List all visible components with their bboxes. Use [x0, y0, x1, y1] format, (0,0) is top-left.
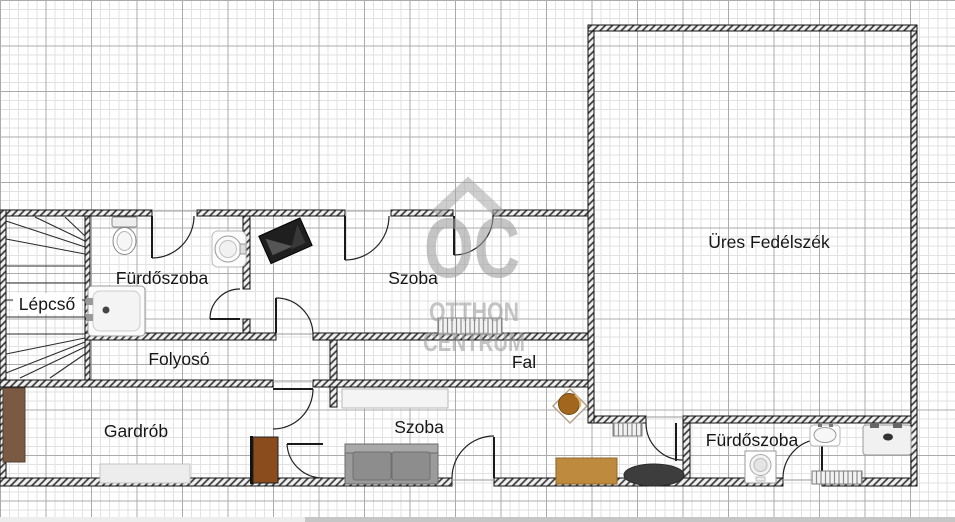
side-table-with-plant: [553, 389, 587, 423]
floorplan-viewer[interactable]: Lépcső Fürdőszoba Szoba Folyosó Fal Gard…: [0, 0, 955, 522]
door-corridor-to-wardrobe-room: [273, 389, 313, 429]
otthon-centrum-watermark: OC OTTHON CENTRUM: [423, 184, 525, 357]
washing-machine: [745, 451, 776, 483]
door-top-room-exterior-left: [345, 216, 389, 260]
room-label-bathroom-top: Fürdőszoba: [116, 268, 209, 288]
door-corridor-to-top-room: [276, 298, 313, 335]
door-attic-to-bottom-room: [646, 423, 683, 461]
door-wardrobe-to-bottom-room: [287, 444, 323, 478]
top-bathroom-shower: [86, 286, 145, 336]
room-label-wardrobe: Gardrób: [104, 421, 168, 441]
watermark-line2: CENTRUM: [423, 327, 525, 357]
room-label-stairs: Lépcső: [19, 294, 76, 314]
room-label-bathroom-bottom: Fürdőszoba: [706, 430, 799, 450]
radiator-bottom-bathroom: [812, 471, 862, 484]
door-bottom-room-exterior: [452, 436, 494, 478]
floorplan-drawing: Lépcső Fürdőszoba Szoba Folyosó Fal Gard…: [0, 0, 955, 522]
door-top-bathroom-exterior: [152, 216, 194, 258]
radiator-bottom-room: [613, 423, 642, 436]
horizontal-scrollbar-thumb[interactable]: [305, 517, 955, 522]
top-bathroom-sink: [212, 231, 246, 267]
wardrobe-unit-bottom-room: [342, 389, 448, 408]
desk-tan: [556, 458, 617, 484]
top-bathroom-toilet: [112, 217, 137, 255]
dark-rug-oval: [624, 464, 684, 486]
sofa: [345, 444, 438, 484]
room-label-room-bottom: Szoba: [394, 417, 444, 437]
piano-dark-object: [259, 218, 312, 264]
dresser-light: [100, 464, 190, 483]
room-label-empty-attic: Üres Fedélszék: [708, 232, 830, 252]
watermark-brand: OC: [424, 201, 520, 295]
bottom-bathroom-shower: [863, 423, 911, 455]
door-top-bathroom-to-room: [210, 289, 240, 319]
room-label-corridor: Folyosó: [148, 349, 209, 369]
wardrobe-tall-brown: [3, 388, 25, 462]
watermark-line1: OTTHON: [429, 297, 519, 327]
cabinet-brown: [250, 436, 278, 484]
bottom-bathroom-sink: [810, 424, 840, 446]
